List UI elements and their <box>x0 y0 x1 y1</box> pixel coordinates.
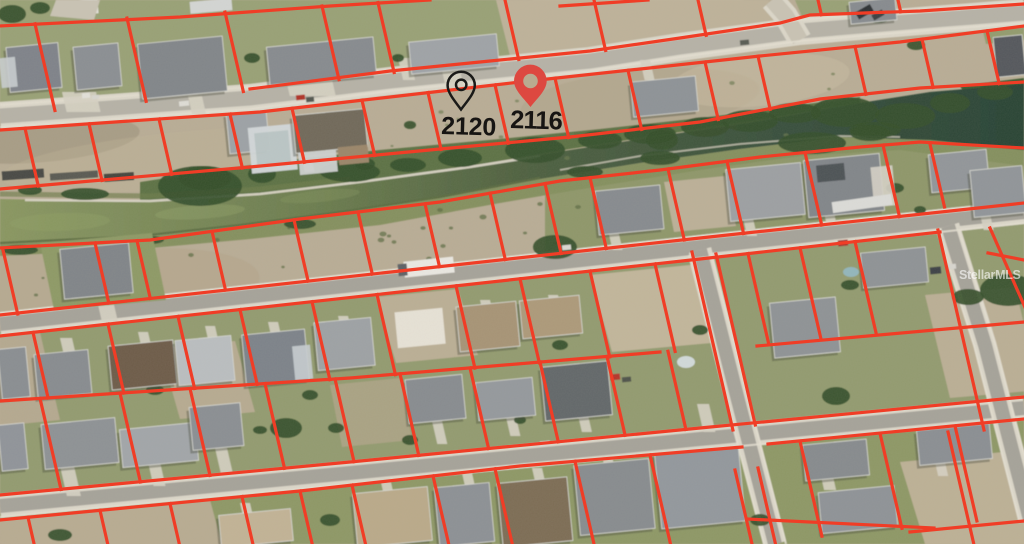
svg-text:2116: 2116 <box>510 106 563 135</box>
svg-text:2120: 2120 <box>441 112 497 142</box>
svg-text:StellarMLS: StellarMLS <box>959 268 1021 282</box>
